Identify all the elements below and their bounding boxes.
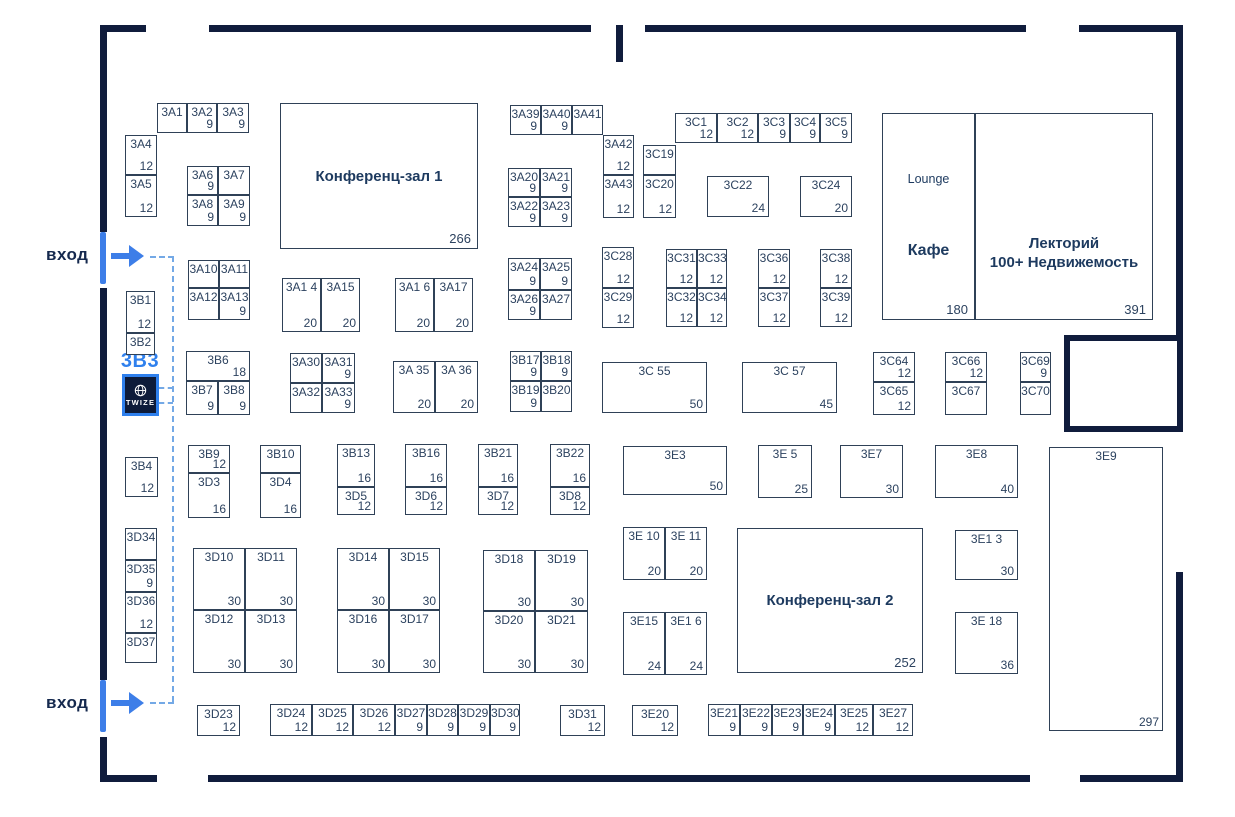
booth-3D19: 3D1930 bbox=[535, 550, 588, 611]
booth-area: 30 bbox=[228, 657, 241, 672]
booth-label: 3D27 bbox=[396, 705, 426, 720]
booth-area: 9 bbox=[207, 399, 214, 414]
booth-area: 12 bbox=[617, 312, 630, 327]
booth-area: 9 bbox=[530, 119, 537, 134]
booth-area: 9 bbox=[530, 365, 537, 380]
booth-3D25: 3D2512 bbox=[312, 704, 353, 736]
booth-label: 3B1 bbox=[127, 292, 154, 307]
booth-3E7: 3E730 bbox=[840, 445, 903, 498]
booth-3D26: 3D2612 bbox=[353, 704, 395, 736]
booth-3A11: 3A11 bbox=[219, 260, 250, 288]
booth-label: 3E25 bbox=[836, 705, 872, 720]
booth-3A30: 3A30 bbox=[290, 353, 322, 383]
booth-3C2: 3C212 bbox=[717, 113, 758, 143]
booth-3A36: 3A 3620 bbox=[435, 361, 478, 413]
booth-3D7: 3D712 bbox=[478, 487, 518, 515]
booth-label: 3D26 bbox=[354, 705, 394, 720]
booth-area: 30 bbox=[372, 594, 385, 609]
wall-right-lower bbox=[1176, 572, 1183, 782]
booth-label: 3E1 3 bbox=[956, 531, 1017, 546]
booth-3D11: 3D1130 bbox=[245, 548, 297, 610]
booth-area: 9 bbox=[344, 367, 351, 382]
booth-label: 3D23 bbox=[198, 706, 239, 721]
booth-label: 3C19 bbox=[644, 146, 675, 161]
booth-3C5: 3C59 bbox=[820, 113, 852, 143]
zone-area: 180 bbox=[946, 302, 968, 317]
booth-3C69: 3C699 bbox=[1020, 352, 1051, 382]
booth-3D4: 3D416 bbox=[260, 473, 301, 518]
booth-area: 12 bbox=[138, 317, 151, 332]
booth-label: 3A4 bbox=[126, 136, 156, 151]
lounge-label: Lounge bbox=[883, 172, 974, 186]
booth-3C29: 3C2912 bbox=[602, 288, 634, 328]
booth-3E22: 3E229 bbox=[740, 704, 772, 736]
booth-3B20: 3B20 bbox=[541, 381, 572, 412]
booth-3A20: 3A209 bbox=[508, 168, 540, 197]
service-room-outline bbox=[1064, 335, 1183, 432]
booth-3A40: 3A409 bbox=[541, 105, 572, 135]
booth-area: 12 bbox=[140, 159, 153, 174]
booth-label: 3D36 bbox=[126, 593, 156, 608]
booth-label: 3D11 bbox=[246, 549, 296, 564]
booth-label: 3B19 bbox=[511, 382, 540, 397]
booth-area: 12 bbox=[213, 457, 226, 472]
booth-3D29: 3D299 bbox=[458, 704, 490, 736]
booth-label: 3C 55 bbox=[603, 363, 706, 378]
booth-label: 3D19 bbox=[536, 551, 587, 566]
booth-area: 9 bbox=[207, 179, 214, 194]
booth-area: 25 bbox=[795, 482, 808, 497]
booth-area: 9 bbox=[561, 119, 568, 134]
booth-area: 9 bbox=[416, 720, 423, 735]
booth-3C19: 3C19 bbox=[643, 145, 676, 175]
booth-area: 12 bbox=[835, 311, 848, 326]
booth-label: 3B22 bbox=[551, 445, 589, 460]
booth-3C34: 3C3412 bbox=[697, 288, 727, 327]
wall-bottom-right-corner bbox=[1080, 775, 1183, 782]
booth-area: 30 bbox=[423, 594, 436, 609]
booth-3D37: 3D37 bbox=[125, 633, 157, 663]
booth-area: 20 bbox=[343, 316, 356, 331]
lectory-zone: Лекторий 100+ Недвижемость 391 bbox=[975, 113, 1153, 320]
booth-area: 9 bbox=[509, 720, 516, 735]
booth-area: 12 bbox=[430, 499, 443, 514]
booth-area: 16 bbox=[573, 471, 586, 486]
booth-3C33: 3C3312 bbox=[697, 249, 727, 288]
booth-label: 3A1 bbox=[158, 104, 186, 119]
booth-label: 3A9 bbox=[219, 196, 249, 211]
booth-area: 20 bbox=[690, 564, 703, 579]
booth-3C20: 3C2012 bbox=[643, 175, 676, 218]
booth-area: 36 bbox=[1001, 658, 1014, 673]
booth-3E3: 3E350 bbox=[623, 446, 727, 495]
booth-area: 24 bbox=[752, 201, 765, 216]
booth-3C57: 3C 5745 bbox=[742, 362, 837, 413]
booth-area: 12 bbox=[700, 127, 713, 142]
booth-area: 30 bbox=[571, 657, 584, 672]
booth-3C66: 3C6612 bbox=[945, 352, 987, 382]
conference-hall-1: Конференц-зал 1 266 bbox=[280, 103, 478, 249]
booth-area: 9 bbox=[239, 304, 246, 319]
booth-label: 3E 18 bbox=[956, 613, 1017, 628]
booth-area: 16 bbox=[284, 502, 297, 517]
booth-label: 3D37 bbox=[126, 634, 156, 649]
booth-area: 12 bbox=[140, 201, 153, 216]
booth-label: 3C34 bbox=[698, 289, 726, 304]
booth-label: 3A8 bbox=[188, 196, 217, 211]
booth-3B18: 3B189 bbox=[541, 351, 572, 381]
booth-3D31: 3D3112 bbox=[560, 705, 605, 736]
booth-label: 3A1 6 bbox=[396, 279, 433, 294]
booth-3A13: 3A139 bbox=[219, 288, 250, 320]
booth-label: 3A32 bbox=[291, 384, 321, 399]
booth-label: 3D17 bbox=[390, 611, 439, 626]
booth-area: 30 bbox=[280, 657, 293, 672]
globe-icon bbox=[134, 384, 147, 397]
booth-label: 3D12 bbox=[194, 611, 244, 626]
booth-label: 3D34 bbox=[126, 529, 156, 544]
booth-label: 3C65 bbox=[874, 383, 914, 398]
zone-area: 391 bbox=[1124, 302, 1146, 317]
booth-area: 20 bbox=[456, 316, 469, 331]
booth-3B1: 3B112 bbox=[126, 291, 155, 333]
booth-3A32: 3A32 bbox=[290, 383, 322, 413]
visitor-route-segment bbox=[150, 702, 174, 704]
booth-label: 3D20 bbox=[484, 612, 534, 627]
booth-3A7: 3A7 bbox=[218, 166, 250, 195]
booth-label: 3B2 bbox=[127, 334, 154, 349]
booth-3A15: 3A1520 bbox=[321, 278, 360, 332]
booth-label: 3A5 bbox=[126, 176, 156, 191]
booth-area: 12 bbox=[617, 159, 630, 174]
booth-3C55: 3C 5550 bbox=[602, 362, 707, 413]
booth-area: 30 bbox=[571, 595, 584, 610]
booth-area: 9 bbox=[530, 396, 537, 411]
booth-area: 12 bbox=[661, 720, 674, 735]
booth-3A21: 3A219 bbox=[540, 168, 572, 197]
booth-3A17: 3A1720 bbox=[434, 278, 473, 332]
booth-3A35: 3A 3520 bbox=[393, 361, 435, 413]
booth-3A26: 3A269 bbox=[508, 290, 540, 320]
booth-3C22: 3C2224 bbox=[707, 176, 769, 217]
booth-3D20: 3D2030 bbox=[483, 611, 535, 673]
booth-area: 20 bbox=[648, 564, 661, 579]
booth-3A42: 3A4212 bbox=[603, 135, 634, 175]
booth-label: 3E22 bbox=[741, 705, 771, 720]
booth-label: 3A10 bbox=[189, 261, 218, 276]
booth-area: 30 bbox=[372, 657, 385, 672]
booth-area: 30 bbox=[518, 595, 531, 610]
booth-label: 3D10 bbox=[194, 549, 244, 564]
booth-label: 3C22 bbox=[708, 177, 768, 192]
booth-area: 9 bbox=[761, 720, 768, 735]
booth-3B22: 3B2216 bbox=[550, 444, 590, 487]
booth-label: 3C70 bbox=[1021, 383, 1050, 398]
booth-area: 12 bbox=[501, 499, 514, 514]
visitor-route-segment bbox=[172, 256, 174, 702]
booth-3A24: 3A249 bbox=[508, 258, 540, 290]
hall-label: Конференц-зал 2 bbox=[766, 592, 893, 609]
booth-label: 3A25 bbox=[541, 259, 571, 274]
booth-area: 9 bbox=[344, 397, 351, 412]
booth-label: 3C20 bbox=[644, 176, 675, 191]
booth-3E20: 3E2012 bbox=[632, 705, 678, 736]
booth-area: 12 bbox=[617, 272, 630, 287]
booth-label: 3D31 bbox=[561, 706, 604, 721]
booth-3D14: 3D1430 bbox=[337, 548, 389, 610]
booth-3B9: 3B912 bbox=[188, 445, 230, 473]
booth-label: 3D24 bbox=[271, 705, 311, 720]
booth-3D15: 3D1530 bbox=[389, 548, 440, 610]
booth-3B16: 3B1616 bbox=[405, 444, 447, 487]
booth-label: 3A15 bbox=[322, 279, 359, 294]
booth-3C64: 3C6412 bbox=[873, 352, 915, 382]
booth-label: 3A1 4 bbox=[283, 279, 320, 294]
booth-label: 3E21 bbox=[709, 705, 739, 720]
booth-area: 12 bbox=[970, 366, 983, 381]
booth-label: 3E24 bbox=[804, 705, 834, 720]
wall-top-stub bbox=[616, 25, 623, 62]
booth-3D23: 3D2312 bbox=[197, 705, 240, 736]
booth-area: 30 bbox=[886, 482, 899, 497]
booth-label: 3C38 bbox=[821, 250, 851, 265]
booth-3C32: 3C3212 bbox=[666, 288, 697, 327]
booth-label: 3E9 bbox=[1050, 448, 1162, 463]
booth-3A39: 3A399 bbox=[510, 105, 541, 135]
booth-label: 3E8 bbox=[936, 446, 1017, 461]
booth-3A8: 3A89 bbox=[187, 195, 218, 226]
booth-label: 3A30 bbox=[291, 354, 321, 369]
booth-label: 3E15 bbox=[624, 613, 664, 628]
booth-3C67: 3C67 bbox=[945, 382, 987, 415]
booth-3B6: 3B618 bbox=[186, 351, 250, 381]
booth-label: 3D14 bbox=[338, 549, 388, 564]
booth-label: 3C37 bbox=[759, 289, 789, 304]
booth-label: 3E 11 bbox=[666, 528, 706, 543]
booth-label: 3B21 bbox=[479, 445, 517, 460]
entrance-bottom-label: вход bbox=[46, 693, 88, 713]
booth-label: 3B13 bbox=[338, 445, 374, 460]
booth-3A9: 3A99 bbox=[218, 195, 250, 226]
booth-area: 30 bbox=[518, 657, 531, 672]
booth-3A14: 3A1 420 bbox=[282, 278, 321, 332]
booth-area: 9 bbox=[1040, 366, 1047, 381]
booth-area: 9 bbox=[779, 127, 786, 142]
booth-3B13: 3B1316 bbox=[337, 444, 375, 487]
booth-3B8: 3B89 bbox=[218, 381, 250, 415]
booth-area: 9 bbox=[561, 274, 568, 289]
booth-area: 12 bbox=[710, 272, 723, 287]
entrance-top-marker bbox=[100, 232, 106, 284]
booth-3D3: 3D316 bbox=[188, 473, 230, 518]
booth-label: 3A27 bbox=[541, 291, 571, 306]
booth-area: 12 bbox=[896, 720, 909, 735]
booth-area: 9 bbox=[479, 720, 486, 735]
booth-area: 12 bbox=[617, 202, 630, 217]
booth-3E24: 3E249 bbox=[803, 704, 835, 736]
booth-area: 9 bbox=[529, 304, 536, 319]
booth-3A31: 3A319 bbox=[322, 353, 355, 383]
booth-area: 9 bbox=[447, 720, 454, 735]
booth-area: 45 bbox=[820, 397, 833, 412]
booth-3D16: 3D1630 bbox=[337, 610, 389, 673]
booth-area: 12 bbox=[773, 272, 786, 287]
booth-label: 3D25 bbox=[313, 705, 352, 720]
booth-area: 12 bbox=[856, 720, 869, 735]
cafe-label: Кафе bbox=[883, 242, 974, 260]
booth-area: 12 bbox=[680, 272, 693, 287]
booth-3A12: 3A12 bbox=[188, 288, 219, 320]
booth-3A10: 3A10 bbox=[188, 260, 219, 288]
booth-3B10: 3B10 bbox=[260, 445, 301, 473]
booth-3A41: 3A41 bbox=[572, 105, 603, 135]
booth-area: 9 bbox=[206, 117, 213, 132]
booth-3B17: 3B179 bbox=[510, 351, 541, 381]
wall-top-right-corner bbox=[1079, 25, 1183, 32]
booth-label: 3D18 bbox=[484, 551, 534, 566]
booth-3E15: 3E1524 bbox=[623, 612, 665, 675]
visitor-route-segment bbox=[150, 256, 174, 258]
wall-top-segment-1 bbox=[209, 25, 591, 32]
booth-label: 3D4 bbox=[261, 474, 300, 489]
booth-3B19: 3B199 bbox=[510, 381, 541, 412]
booth-label: 3B10 bbox=[261, 446, 300, 461]
booth-label: 3D3 bbox=[189, 474, 229, 489]
booth-label: 3B16 bbox=[406, 445, 446, 460]
entrance-bottom-arrow-icon bbox=[111, 690, 145, 716]
booth-area: 20 bbox=[461, 397, 474, 412]
booth-area: 12 bbox=[141, 481, 154, 496]
booth-area: 9 bbox=[561, 181, 568, 196]
booth-label: 3C31 bbox=[667, 250, 696, 265]
booth-label: 3B8 bbox=[219, 382, 249, 397]
entrance-top-label: вход bbox=[46, 245, 88, 265]
booth-area: 12 bbox=[295, 720, 308, 735]
booth-3E5: 3E 525 bbox=[758, 445, 812, 498]
booth-3C3: 3C39 bbox=[758, 113, 790, 143]
booth-3E13: 3E1 330 bbox=[955, 530, 1018, 580]
booth-label: 3A17 bbox=[435, 279, 472, 294]
wall-bottom-left-corner bbox=[100, 775, 157, 782]
booth-label: 3D21 bbox=[536, 612, 587, 627]
booth-area: 12 bbox=[659, 202, 672, 217]
booth-label: 3A 35 bbox=[394, 362, 434, 377]
booth-area: 12 bbox=[358, 499, 371, 514]
booth-3C1: 3C112 bbox=[675, 113, 717, 143]
booth-label: 3A 36 bbox=[436, 362, 477, 377]
booth-area: 12 bbox=[573, 499, 586, 514]
booth-3A3: 3A39 bbox=[217, 103, 249, 133]
booth-area: 12 bbox=[140, 617, 153, 632]
booth-area: 20 bbox=[417, 316, 430, 331]
wall-left-upper bbox=[100, 25, 107, 232]
booth-3A2: 3A29 bbox=[187, 103, 217, 133]
booth-3C65: 3C6512 bbox=[873, 382, 915, 415]
booth-area: 12 bbox=[680, 311, 693, 326]
booth-area: 12 bbox=[223, 720, 236, 735]
booth-label: 3C24 bbox=[801, 177, 851, 192]
booth-label: 3E3 bbox=[624, 447, 726, 462]
booth-area: 9 bbox=[239, 399, 246, 414]
booth-area: 16 bbox=[358, 471, 371, 486]
booth-area: 9 bbox=[239, 210, 246, 225]
booth-label: 3D13 bbox=[246, 611, 296, 626]
booth-3D10: 3D1030 bbox=[193, 548, 245, 610]
booth-area: 30 bbox=[423, 657, 436, 672]
booth-3A5: 3A512 bbox=[125, 175, 157, 217]
booth-label: 3C28 bbox=[603, 248, 633, 263]
booth-area: 9 bbox=[809, 127, 816, 142]
entrance-bottom-marker bbox=[100, 680, 106, 732]
booth-area: 9 bbox=[529, 181, 536, 196]
booth-3E23: 3E239 bbox=[772, 704, 803, 736]
booth-area: 9 bbox=[824, 720, 831, 735]
booth-3C70: 3C70 bbox=[1020, 382, 1051, 415]
booth-3D28: 3D289 bbox=[427, 704, 458, 736]
booth-3A43: 3A4312 bbox=[603, 175, 634, 218]
booth-area: 9 bbox=[561, 365, 568, 380]
booth-label: 3B4 bbox=[126, 458, 157, 473]
booth-area: 12 bbox=[835, 272, 848, 287]
lectory-label: Лекторий 100+ Недвижемость bbox=[976, 234, 1152, 272]
booth-3C31: 3C3112 bbox=[666, 249, 697, 288]
booth-3D35: 3D359 bbox=[125, 560, 157, 592]
booth-area: 9 bbox=[841, 127, 848, 142]
booth-label: 3A24 bbox=[509, 259, 539, 274]
booth-3A33: 3A339 bbox=[322, 383, 355, 413]
booth-area: 12 bbox=[710, 311, 723, 326]
booth-3B2: 3B2 bbox=[126, 333, 155, 355]
booth-3A4: 3A412 bbox=[125, 135, 157, 175]
booth-3C38: 3C3812 bbox=[820, 249, 852, 288]
booth-area: 12 bbox=[378, 720, 391, 735]
booth-label: 3D30 bbox=[491, 705, 519, 720]
booth-3E10: 3E 1020 bbox=[623, 527, 665, 580]
booth-3E25: 3E2512 bbox=[835, 704, 873, 736]
booth-3B3-twize: TWIZE bbox=[122, 374, 159, 416]
booth-area: 24 bbox=[648, 659, 661, 674]
booth-3D36: 3D3612 bbox=[125, 592, 157, 633]
booth-label: 3D28 bbox=[428, 705, 457, 720]
booth-label: 3B7 bbox=[187, 382, 217, 397]
booth-3A16: 3A1 620 bbox=[395, 278, 434, 332]
booth-label: 3E 5 bbox=[759, 446, 811, 461]
booth-label: 3A7 bbox=[219, 167, 249, 182]
entrance-top-arrow-icon bbox=[111, 243, 145, 269]
booth-3D27: 3D279 bbox=[395, 704, 427, 736]
booth-3A22: 3A229 bbox=[508, 197, 540, 227]
booth-3B7: 3B79 bbox=[186, 381, 218, 415]
booth-area: 20 bbox=[835, 201, 848, 216]
booth-3D24: 3D2412 bbox=[270, 704, 312, 736]
booth-3D30: 3D309 bbox=[490, 704, 520, 736]
wall-left-middle bbox=[100, 288, 107, 680]
booth-label: 3E27 bbox=[874, 705, 912, 720]
wall-bottom-main bbox=[208, 775, 1030, 782]
booth-label: 3A41 bbox=[573, 106, 602, 121]
booth-label: 3A42 bbox=[604, 136, 633, 151]
booth-3D5: 3D512 bbox=[337, 487, 375, 515]
booth-3D13: 3D1330 bbox=[245, 610, 297, 673]
visitor-route-segment bbox=[159, 402, 173, 404]
conference-hall-2: Конференц-зал 2 252 bbox=[737, 528, 923, 673]
booth-3E16: 3E1 624 bbox=[665, 612, 707, 675]
booth-label: 3A11 bbox=[220, 261, 249, 276]
booth-3E21: 3E219 bbox=[708, 704, 740, 736]
booth-area: 16 bbox=[213, 502, 226, 517]
booth-3C24: 3C2420 bbox=[800, 176, 852, 217]
booth-3E18: 3E 1836 bbox=[955, 612, 1018, 674]
